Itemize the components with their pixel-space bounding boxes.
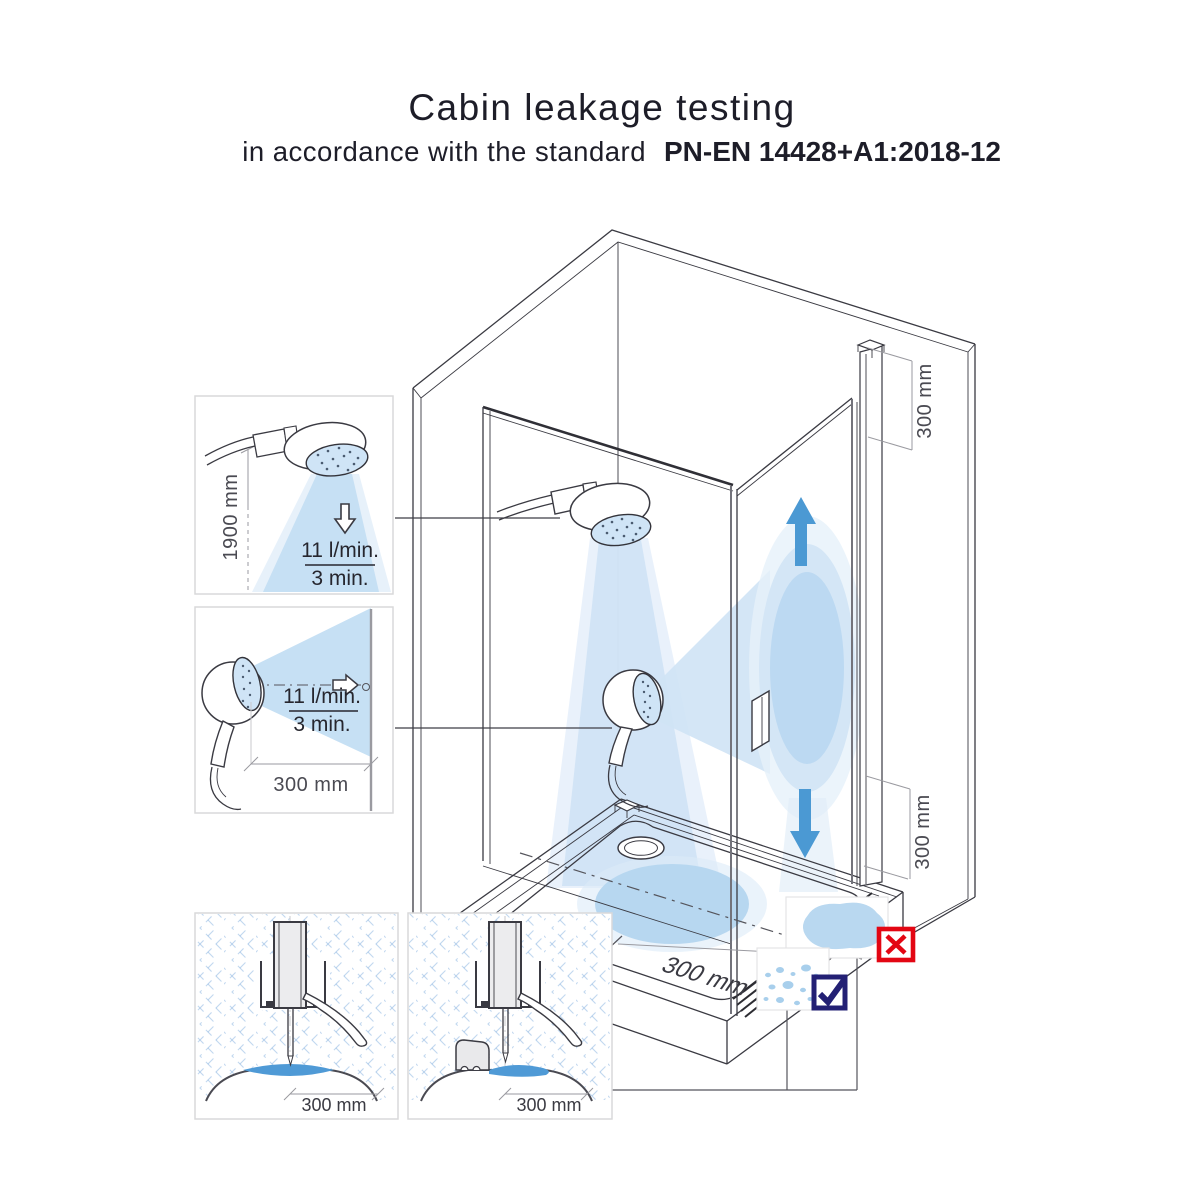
- puddle: [803, 903, 885, 949]
- inset-horizontal-spray: 300 mm 11 l/min. 3 min.: [195, 607, 393, 813]
- wall-profile-bar: [858, 340, 884, 886]
- threshold-block: [456, 1040, 489, 1070]
- shower-head-overhead: [497, 478, 653, 549]
- inset-seal-no-threshold: 300 mm: [195, 913, 398, 1119]
- page-title: Cabin leakage testing: [408, 87, 795, 128]
- standard-code: PN-EN 14428+A1:2018-12: [664, 136, 1001, 167]
- floor-impact-ellipse: [595, 864, 749, 944]
- inset-seal-with-threshold: 300 mm: [408, 913, 612, 1119]
- spray-fills: [546, 516, 865, 952]
- distance-dimension-label: 300 mm: [301, 1095, 366, 1115]
- flow-rate-label: 11 l/min.: [301, 539, 379, 562]
- door-handle: [752, 691, 769, 751]
- page-subtitle: in accordance with the standard: [242, 136, 646, 167]
- dimension-label: 300 mm: [656, 953, 755, 1001]
- inset-overhead-spray: 1900 mm 11 l/min. 3 min.: [195, 396, 393, 594]
- distance-dimension-label: 300 mm: [273, 774, 348, 796]
- flow-rate-label: 11 l/min.: [283, 685, 361, 708]
- height-dimension-label: 1900 mm: [220, 474, 242, 561]
- door-impact-ellipse: [770, 572, 844, 764]
- title-block: Cabin leakage testing in accordance with…: [242, 87, 1001, 167]
- duration-label: 3 min.: [293, 713, 350, 736]
- dimension-label: 300 mm: [912, 794, 934, 869]
- distance-dimension-label: 300 mm: [516, 1095, 581, 1115]
- side-glass-top-rail: [483, 407, 733, 485]
- cabin-leakage-diagram: Cabin leakage testing in accordance with…: [0, 0, 1200, 1200]
- dimension-label: 300 mm: [914, 363, 936, 438]
- duration-label: 3 min.: [311, 567, 368, 590]
